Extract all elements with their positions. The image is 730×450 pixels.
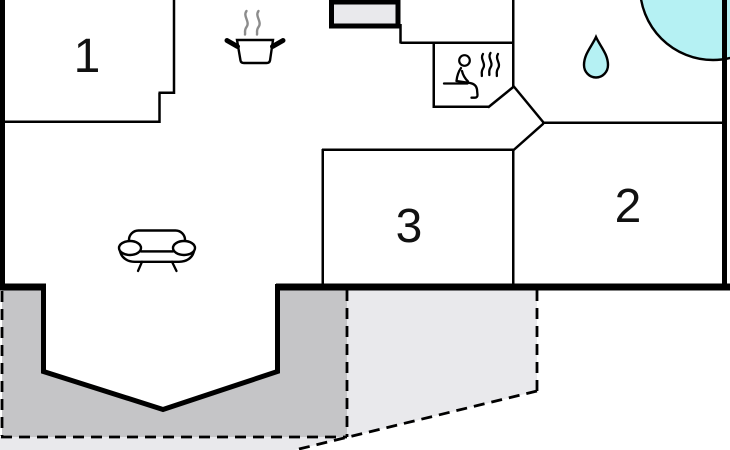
room1-label: 1 [74, 30, 101, 83]
heat-wave [489, 53, 491, 75]
sofa-leg-right [172, 262, 177, 271]
sauna-person-arm [462, 71, 468, 82]
floor-plan: 1 2 3 [0, 0, 730, 450]
sofa-arm-right [173, 241, 195, 255]
steam-line [257, 11, 260, 35]
sofa-arm-left [119, 241, 141, 255]
pot-handle-right [273, 41, 284, 47]
water-drop-icon [584, 37, 608, 78]
floor-plan-svg: 1 2 3 [0, 0, 730, 450]
sauna-person-body [457, 68, 462, 81]
pot-handle-left [227, 41, 238, 47]
sofa-icon [119, 231, 195, 272]
room3-label: 3 [396, 200, 423, 253]
heat-wave [497, 54, 499, 76]
sauna-door-bevel [488, 86, 515, 108]
doorway-chevron-bottom [513, 124, 544, 152]
sofa-leg-left [138, 262, 142, 271]
pot-body [237, 40, 273, 63]
stove-icon [227, 11, 283, 63]
heat-wave [482, 54, 484, 76]
sauna-icon [444, 53, 499, 98]
interior-walls [0, 0, 727, 288]
sauna-person-head [459, 55, 470, 66]
steam-line [245, 11, 248, 35]
outer-walls [0, 0, 730, 289]
room2-label: 2 [615, 180, 642, 233]
fireplace-block [332, 2, 399, 26]
doorway-chevron-top [513, 86, 544, 123]
whirlpool-icon [640, 0, 730, 60]
